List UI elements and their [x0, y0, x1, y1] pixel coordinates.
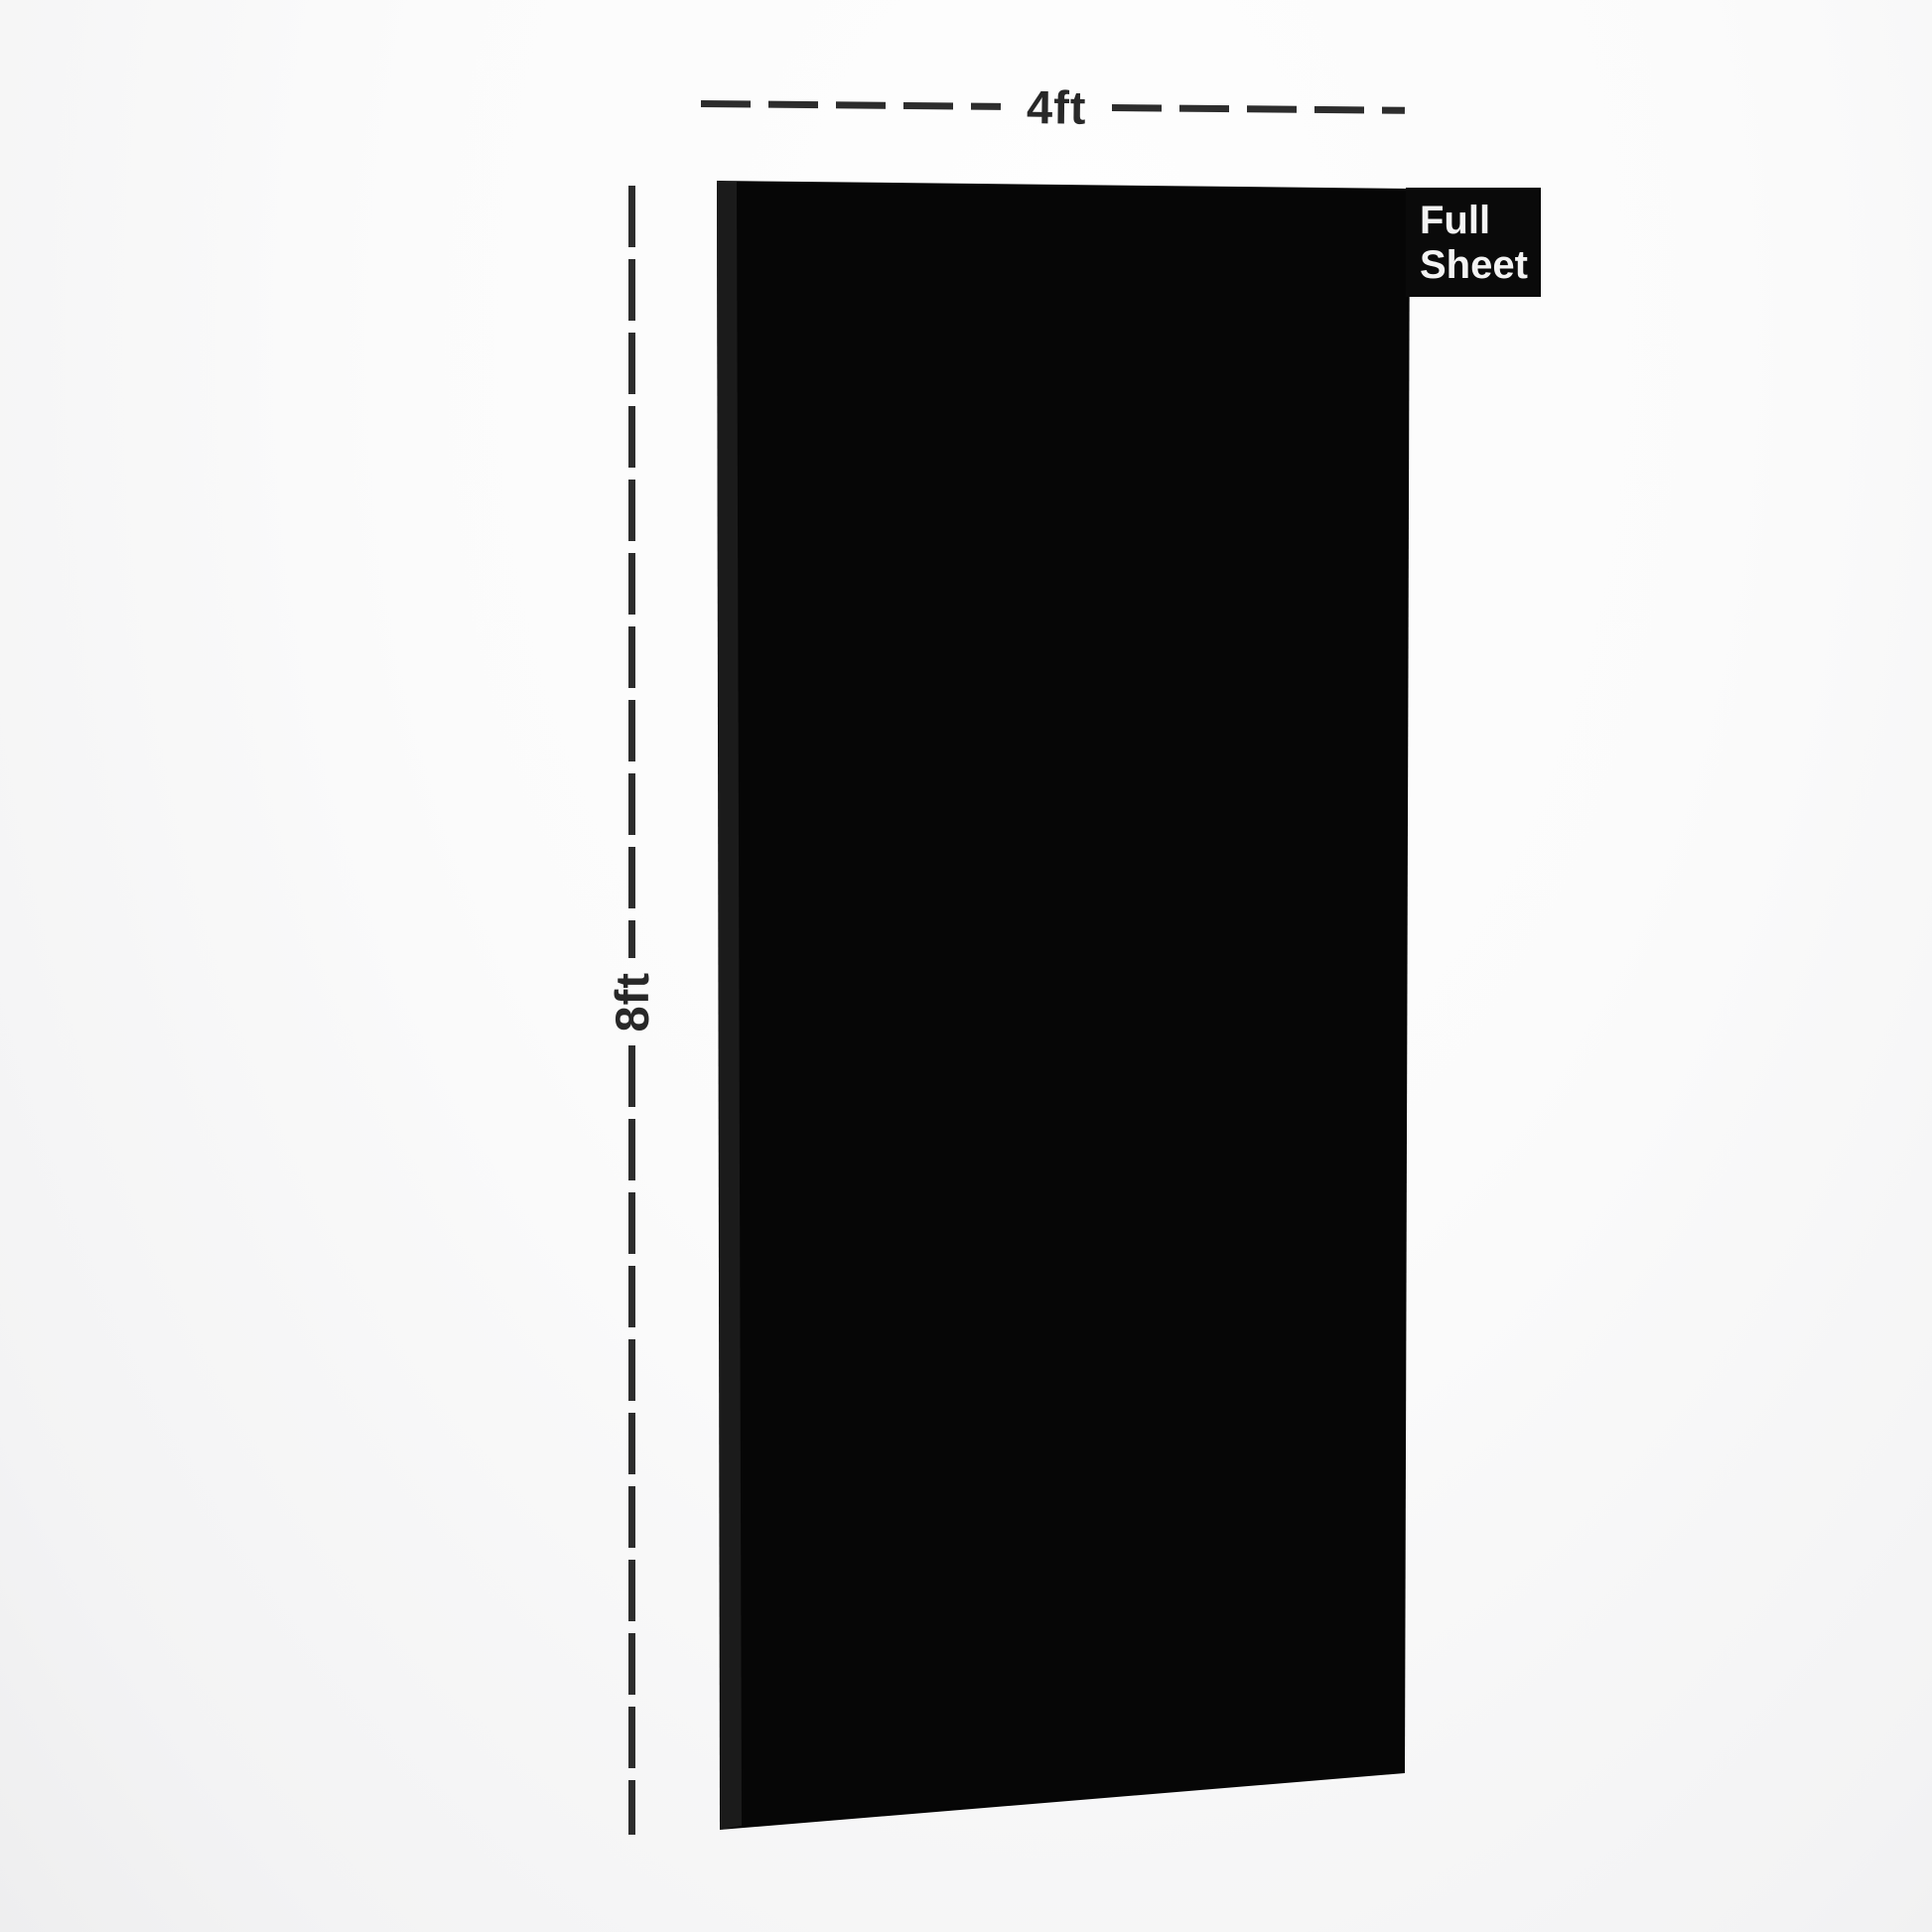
width-dimension-label: 4ft [1027, 79, 1087, 135]
width-dimension-line-right [1112, 103, 1405, 113]
height-dimension-line-bottom [628, 1045, 635, 1835]
height-dimension-label: 8ft [605, 972, 659, 1032]
sheet [0, 0, 1932, 1932]
width-dimension-line-left [701, 100, 1001, 110]
full-sheet-badge: Full Sheet [1406, 188, 1541, 297]
height-dimension-label-text: 8ft [605, 972, 659, 1032]
width-dimension: 4ft [701, 73, 1406, 140]
full-sheet-badge-line1: Full [1420, 199, 1541, 243]
full-sheet-badge-line2: Sheet [1420, 243, 1541, 288]
height-dimension-line-top [628, 186, 635, 958]
height-dimension: 8ft [606, 186, 657, 1835]
product-dimension-diagram: Full Sheet 4ft 8ft [0, 0, 1932, 1932]
